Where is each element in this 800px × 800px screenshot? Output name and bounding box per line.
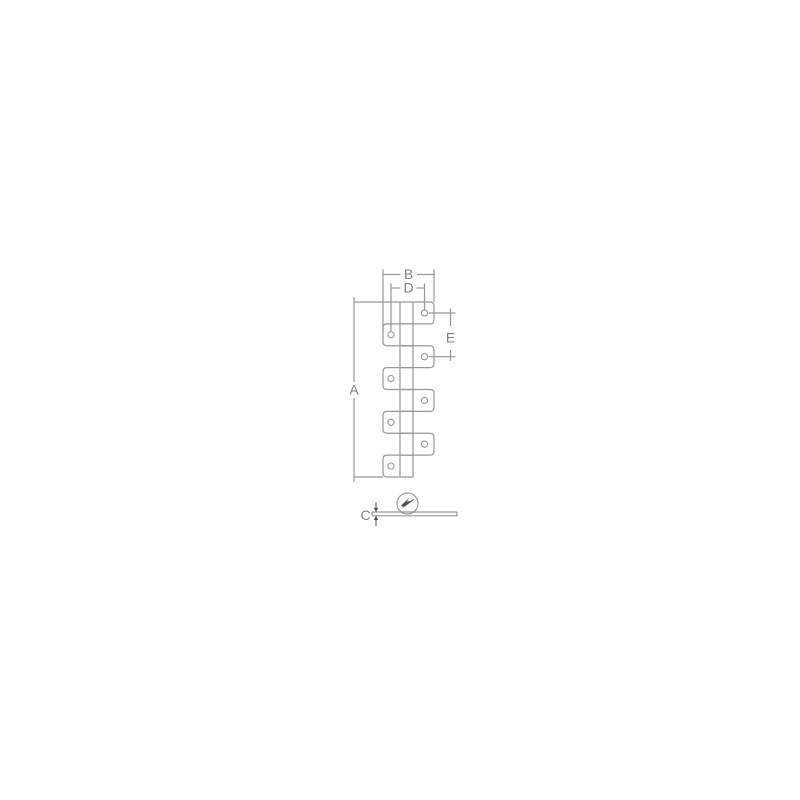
- right-tab: [400, 433, 434, 455]
- right-tab: [400, 390, 434, 412]
- dimension-e: E: [429, 309, 456, 362]
- dim-c-arrow-bottom-head: [374, 516, 378, 520]
- marker-glyph-body: [401, 498, 413, 507]
- drawing-canvas: B D A E: [0, 0, 800, 800]
- mounting-hole: [388, 332, 394, 338]
- mounting-hole: [388, 376, 394, 382]
- mounting-hole: [421, 397, 427, 403]
- dim-e-label: E: [446, 330, 455, 346]
- dim-a-label: A: [349, 382, 359, 398]
- dim-d-label: D: [403, 280, 413, 296]
- mounting-hole: [421, 310, 427, 316]
- dimension-c: C: [360, 502, 378, 526]
- dim-c-arrow-top-head: [374, 508, 378, 512]
- dim-c-label: C: [360, 507, 370, 523]
- direction-marker-icon: [401, 498, 414, 507]
- mounting-hole: [388, 463, 394, 469]
- mounting-hole: [421, 354, 427, 360]
- technical-drawing: B D A E: [0, 0, 800, 800]
- front-view: B D A E: [349, 266, 455, 482]
- side-view: C: [360, 493, 457, 526]
- mounting-hole: [388, 419, 394, 425]
- mounting-hole: [421, 441, 427, 447]
